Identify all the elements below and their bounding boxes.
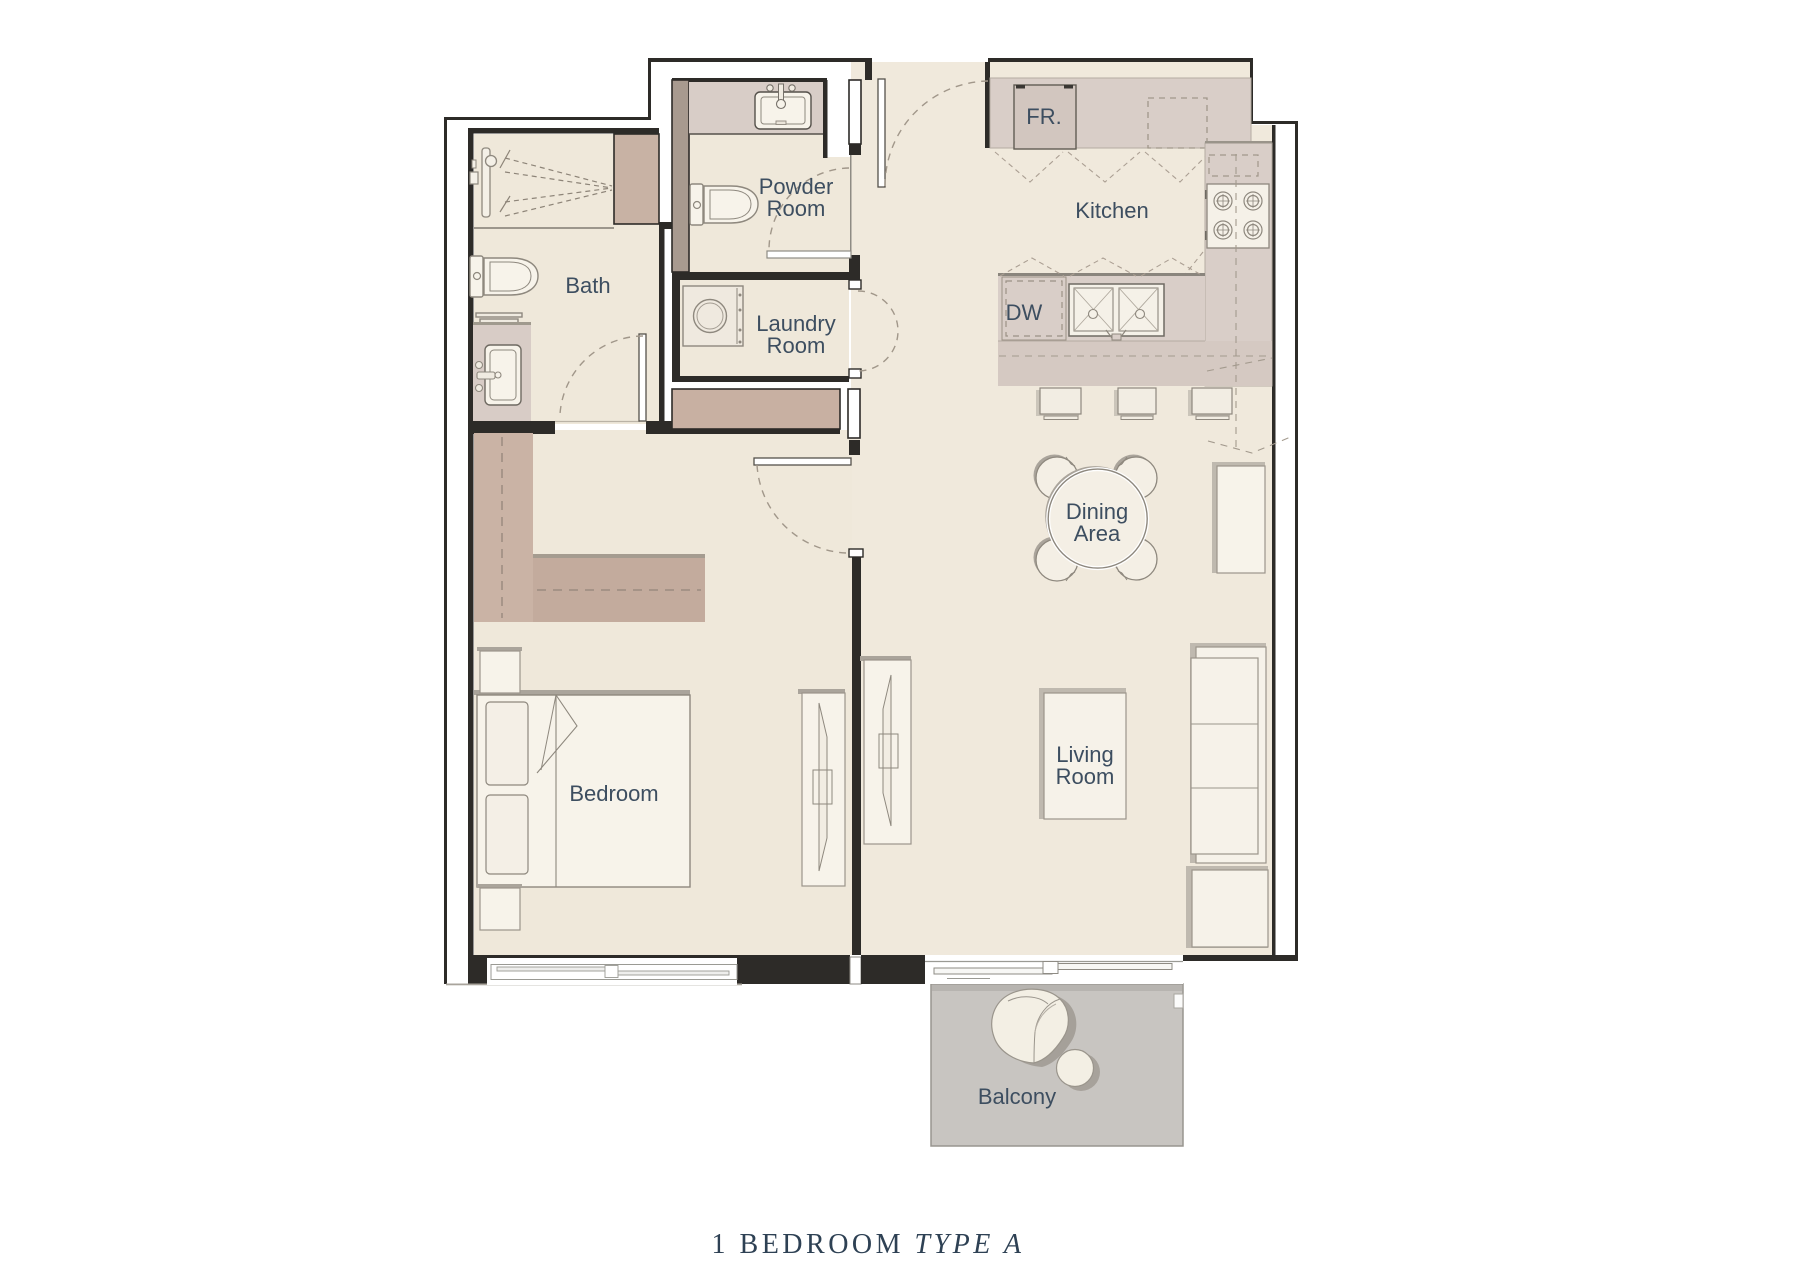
- svg-text:1 BEDROOM TYPE A: 1 BEDROOM TYPE A: [712, 1229, 1025, 1260]
- svg-text:Room: Room: [1056, 764, 1115, 789]
- svg-text:Room: Room: [767, 333, 826, 358]
- svg-text:Balcony: Balcony: [978, 1084, 1056, 1109]
- svg-text:Area: Area: [1074, 521, 1121, 546]
- svg-text:Bedroom: Bedroom: [569, 781, 658, 806]
- svg-text:DW: DW: [1006, 300, 1043, 325]
- svg-text:Room: Room: [767, 196, 826, 221]
- svg-text:Bath: Bath: [565, 273, 610, 298]
- svg-text:Kitchen: Kitchen: [1075, 198, 1148, 223]
- svg-text:FR.: FR.: [1026, 104, 1061, 129]
